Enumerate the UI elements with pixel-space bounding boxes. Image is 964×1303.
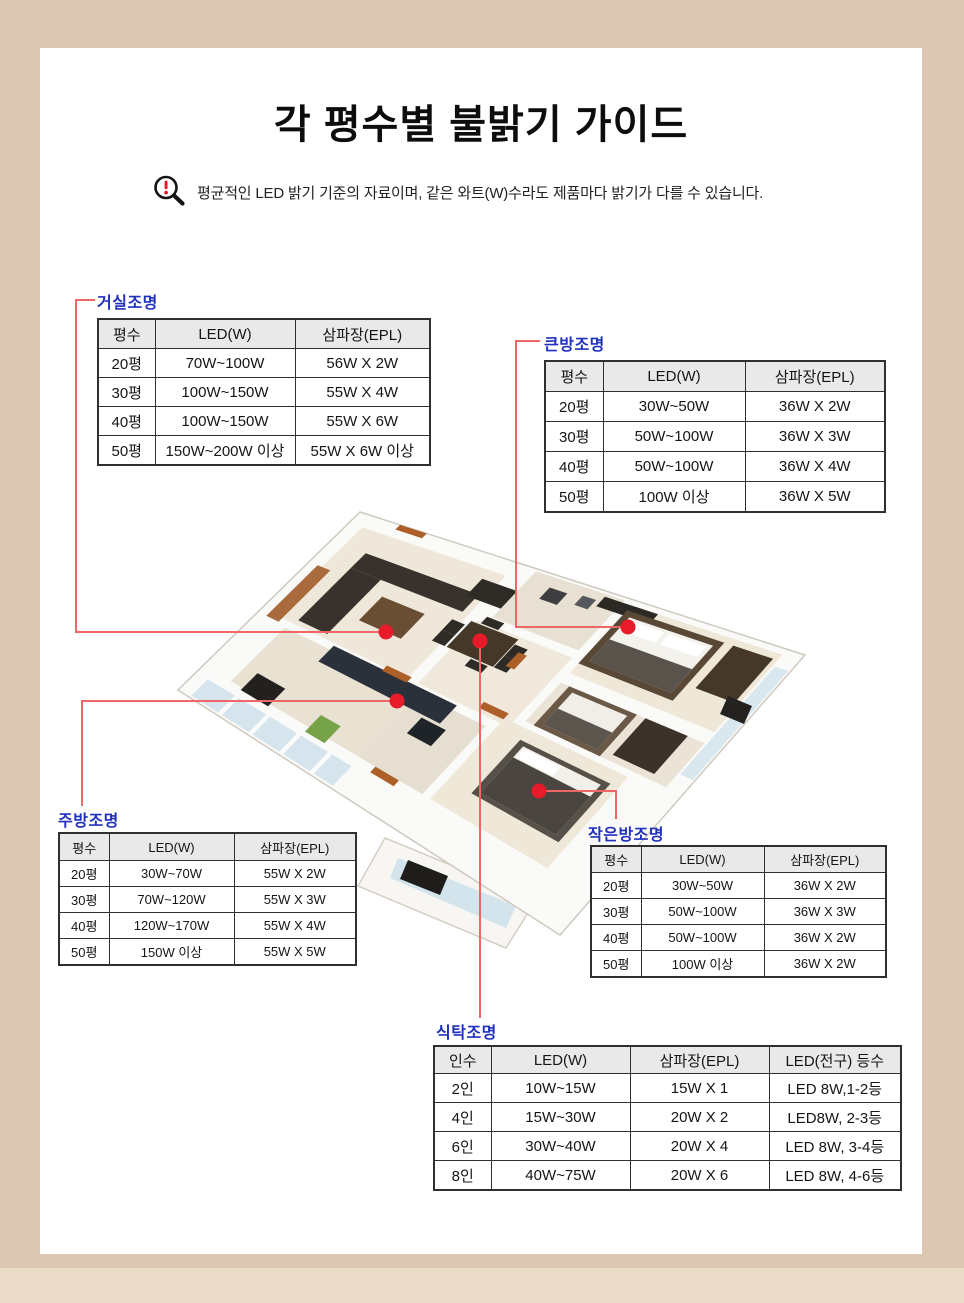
- table-cell: 36W X 2W: [764, 925, 886, 951]
- table-cell: 30평: [545, 422, 603, 452]
- table-cell: 30W~50W: [641, 873, 764, 899]
- plant: [305, 715, 341, 743]
- table-cell: 20W X 2: [630, 1103, 769, 1132]
- door-frame: [479, 702, 509, 720]
- marker-bigroom-dot: [621, 620, 636, 635]
- column-header: 삼파장(EPL): [764, 846, 886, 873]
- notice: 평균적인 LED 밝기 기준의 자료이며, 같은 와트(W)수라도 제품마다 밝…: [150, 173, 763, 211]
- section-title-smallroom: 작은방조명: [588, 821, 664, 845]
- marker-dining-dot: [473, 634, 488, 649]
- table-cell: 36W X 4W: [745, 452, 885, 482]
- chair: [494, 656, 517, 673]
- location-markers: [379, 620, 636, 799]
- table-cell: 20평: [98, 349, 155, 378]
- table-row: 50평150W~200W 이상55W X 6W 이상: [98, 436, 430, 466]
- section-title-kitchen: 주방조명: [58, 807, 119, 831]
- frame-top: [0, 0, 964, 48]
- pillow: [660, 634, 707, 657]
- bed-frame-middle: [534, 686, 637, 756]
- section-smallroom-lighting: 작은방조명 평수LED(W)삼파장(EPL)20평30W~50W36W X 2W…: [588, 821, 664, 845]
- balcony-sofa: [400, 860, 448, 895]
- column-header: 평수: [545, 361, 603, 392]
- marker-kitchen-dot: [390, 694, 405, 709]
- table-row: 40평120W~170W55W X 4W: [59, 913, 356, 939]
- column-header: 삼파장(EPL): [745, 361, 885, 392]
- table-cell: 55W X 5W: [234, 939, 356, 966]
- bath-fixture: [574, 596, 596, 610]
- table-cell: 100W~150W: [155, 378, 295, 407]
- armchair: [466, 579, 517, 609]
- table-row: 50평100W 이상36W X 2W: [591, 951, 886, 978]
- table-row: 40평50W~100W36W X 2W: [591, 925, 886, 951]
- table-cell: 50평: [545, 482, 603, 513]
- tv-unit: [596, 597, 658, 624]
- section-dining-lighting: 식탁조명 인수LED(W)삼파장(EPL)LED(전구) 등수2인10W~15W…: [436, 1019, 497, 1043]
- section-title-bigroom: 큰방조명: [544, 331, 605, 355]
- bed-frame-big: [578, 610, 724, 700]
- notice-text: 평균적인 LED 밝기 기준의 자료이며, 같은 와트(W)수라도 제품마다 밝…: [197, 182, 763, 203]
- room-corridor: [360, 694, 486, 794]
- frame-bottom: [0, 1254, 964, 1268]
- window-mullion: [218, 696, 239, 715]
- table-cell: 15W~30W: [491, 1103, 630, 1132]
- table-cell: 40W~75W: [491, 1161, 630, 1191]
- table-cell: LED8W, 2-3등: [769, 1103, 901, 1132]
- living-lighting-table: 평수LED(W)삼파장(EPL)20평70W~100W56W X 2W30평10…: [97, 318, 431, 466]
- table-cell: 50W~100W: [603, 422, 745, 452]
- table-cell: 150W 이상: [109, 939, 234, 966]
- pillow: [623, 621, 665, 642]
- table-cell: 50W~100W: [641, 925, 764, 951]
- table-row: 8인40W~75W20W X 6LED 8W, 4-6등: [434, 1161, 901, 1191]
- bed-mattress-middle: [543, 693, 627, 750]
- column-header: 평수: [59, 833, 109, 861]
- table-cell: 20W X 4: [630, 1132, 769, 1161]
- table-cell: 10W~15W: [491, 1074, 630, 1103]
- bed-mattress-small: [481, 746, 601, 835]
- bigroom-lighting-table: 평수LED(W)삼파장(EPL)20평30W~50W36W X 2W30평50W…: [544, 360, 886, 513]
- smallroom-lighting-table: 평수LED(W)삼파장(EPL)20평30W~50W36W X 2W30평50W…: [590, 845, 887, 978]
- table-cell: 50평: [59, 939, 109, 966]
- table-cell: 36W X 2W: [745, 392, 885, 422]
- table-row: 30평50W~100W36W X 3W: [545, 422, 885, 452]
- table-cell: LED 8W, 3-4등: [769, 1132, 901, 1161]
- kitchen-island: [318, 646, 457, 724]
- table-cell: 30평: [591, 899, 641, 925]
- table-cell: 4인: [434, 1103, 491, 1132]
- marker-smallroom-dot: [532, 784, 547, 799]
- table-cell: 36W X 3W: [764, 899, 886, 925]
- table-cell: 150W~200W 이상: [155, 436, 295, 466]
- column-header: LED(W): [491, 1046, 630, 1074]
- lounge-chair: [720, 696, 752, 724]
- lounge-chair: [241, 673, 286, 706]
- dining-lighting-table: 인수LED(W)삼파장(EPL)LED(전구) 등수2인10W~15W15W X…: [433, 1045, 902, 1191]
- section-title-living: 거실조명: [97, 289, 158, 313]
- table-cell: 40평: [545, 452, 603, 482]
- table-row: 6인30W~40W20W X 4LED 8W, 3-4등: [434, 1132, 901, 1161]
- section-title-dining: 식탁조명: [436, 1019, 497, 1043]
- section-living-lighting: 거실조명 평수LED(W)삼파장(EPL)20평70W~100W56W X 2W…: [97, 289, 158, 313]
- table-cell: 36W X 5W: [745, 482, 885, 513]
- balcony-bottom: [358, 838, 536, 948]
- table-row: 50평100W 이상36W X 5W: [545, 482, 885, 513]
- balcony-right-glass: [680, 667, 788, 781]
- table-cell: 30W~50W: [603, 392, 745, 422]
- column-header: LED(W): [109, 833, 234, 861]
- table-cell: 100W~150W: [155, 407, 295, 436]
- door-frame: [395, 525, 426, 538]
- section-kitchen-lighting: 주방조명 평수LED(W)삼파장(EPL)20평30W~70W55W X 2W3…: [58, 807, 119, 831]
- column-header: LED(W): [641, 846, 764, 873]
- room-kitchen: [231, 628, 461, 781]
- column-header: 삼파장(EPL): [295, 319, 430, 349]
- wardrobe: [696, 646, 774, 703]
- table-cell: 36W X 2W: [764, 951, 886, 978]
- room-dining-hall: [418, 621, 572, 728]
- table-cell: 120W~170W: [109, 913, 234, 939]
- table-cell: 55W X 4W: [234, 913, 356, 939]
- table-row: 30평70W~120W55W X 3W: [59, 887, 356, 913]
- table-cell: 70W~100W: [155, 349, 295, 378]
- chair: [465, 659, 488, 673]
- kitchen-lighting-table: 평수LED(W)삼파장(EPL)20평30W~70W55W X 2W30평70W…: [58, 832, 357, 966]
- table-cell: 40평: [591, 925, 641, 951]
- table-cell: 20W X 6: [630, 1161, 769, 1191]
- table-cell: 100W 이상: [641, 951, 764, 978]
- table-row: 30평100W~150W55W X 4W: [98, 378, 430, 407]
- balcony-bottom-glass: [390, 858, 516, 928]
- table-cell: 55W X 4W: [295, 378, 430, 407]
- chair: [442, 619, 465, 635]
- window-mullion: [279, 733, 301, 754]
- table-cell: 55W X 3W: [234, 887, 356, 913]
- table-row: 50평150W 이상55W X 5W: [59, 939, 356, 966]
- door-frame: [370, 767, 399, 787]
- table-cell: 50평: [98, 436, 155, 466]
- table-row: 40평100W~150W55W X 6W: [98, 407, 430, 436]
- table-cell: 100W 이상: [603, 482, 745, 513]
- table-cell: 36W X 2W: [764, 873, 886, 899]
- door-frame: [506, 652, 527, 669]
- table-cell: 15W X 1: [630, 1074, 769, 1103]
- table-cell: 50평: [591, 951, 641, 978]
- table-row: 20평30W~50W36W X 2W: [591, 873, 886, 899]
- coffee-table: [359, 597, 425, 639]
- bed-mattress-big: [589, 617, 713, 693]
- column-header: LED(W): [603, 361, 745, 392]
- table-cell: LED 8W,1-2등: [769, 1074, 901, 1103]
- window-mullion: [249, 715, 270, 735]
- chair: [481, 617, 504, 630]
- column-header: LED(W): [155, 319, 295, 349]
- column-header: 평수: [98, 319, 155, 349]
- table-cell: 20평: [591, 873, 641, 899]
- bed-blanket-middle: [543, 709, 612, 750]
- table-cell: 30W~70W: [109, 861, 234, 887]
- section-bigroom-lighting: 큰방조명 평수LED(W)삼파장(EPL)20평30W~50W36W X 2W3…: [544, 331, 605, 355]
- bath-fixture: [539, 588, 567, 605]
- infographic-page: 각 평수별 불밝기 가이드 평균적인 LED 밝기 기준의 자료이며, 같은 와…: [0, 0, 964, 1303]
- balcony-left-glass: [191, 679, 351, 786]
- table-cell: 50W~100W: [641, 899, 764, 925]
- table-cell: 30W~40W: [491, 1132, 630, 1161]
- table-row: 2인10W~15W15W X 1LED 8W,1-2등: [434, 1074, 901, 1103]
- table-cell: 55W X 6W 이상: [295, 436, 430, 466]
- room-living: [274, 527, 506, 678]
- table-row: 20평30W~70W55W X 2W: [59, 861, 356, 887]
- connector-smallroom: [539, 791, 616, 819]
- room-bigroom: [570, 606, 783, 733]
- table-cell: 6인: [434, 1132, 491, 1161]
- table-cell: 40평: [98, 407, 155, 436]
- table-cell: 55W X 6W: [295, 407, 430, 436]
- table-cell: 30평: [59, 887, 109, 913]
- table-cell: 30평: [98, 378, 155, 407]
- kitchen-appliance: [407, 718, 446, 747]
- frame-bottom-strip: [0, 1268, 964, 1303]
- column-header: 삼파장(EPL): [234, 833, 356, 861]
- bed-blanket-big: [589, 639, 692, 693]
- connector-kitchen: [82, 701, 397, 806]
- table-cell: 20평: [545, 392, 603, 422]
- room-middleroom: [525, 683, 704, 788]
- window-frame: [266, 565, 330, 621]
- table-cell: 2인: [434, 1074, 491, 1103]
- column-header: 인수: [434, 1046, 491, 1074]
- door-frame: [382, 666, 412, 683]
- table-cell: 56W X 2W: [295, 349, 430, 378]
- page-title: 각 평수별 불밝기 가이드: [40, 92, 922, 150]
- frame-left: [0, 48, 40, 1254]
- table-cell: 50W~100W: [603, 452, 745, 482]
- sofa: [298, 568, 381, 634]
- table-cell: 36W X 3W: [745, 422, 885, 452]
- bed-blanket-small: [481, 757, 591, 835]
- table-cell: 8인: [434, 1161, 491, 1191]
- column-header: LED(전구) 등수: [769, 1046, 901, 1074]
- table-cell: 40평: [59, 913, 109, 939]
- table-cell: LED 8W, 4-6등: [769, 1161, 901, 1191]
- chair: [432, 630, 455, 646]
- table-row: 30평50W~100W36W X 3W: [591, 899, 886, 925]
- table-cell: 20평: [59, 861, 109, 887]
- table-row: 20평70W~100W56W X 2W: [98, 349, 430, 378]
- table-cell: 55W X 2W: [234, 861, 356, 887]
- chair: [504, 645, 527, 662]
- frame-right: [922, 48, 964, 1254]
- table-row: 4인15W~30W20W X 2LED8W, 2-3등: [434, 1103, 901, 1132]
- column-header: 삼파장(EPL): [630, 1046, 769, 1074]
- sofa: [351, 553, 479, 612]
- magnifier-alert-icon: [150, 173, 188, 211]
- table-row: 40평50W~100W36W X 4W: [545, 452, 885, 482]
- window-mullion: [310, 752, 332, 774]
- pillow: [516, 749, 561, 776]
- wardrobe: [613, 718, 688, 774]
- table-row: 20평30W~50W36W X 2W: [545, 392, 885, 422]
- dining-table: [447, 621, 519, 667]
- room-entry: [492, 571, 624, 650]
- marker-living-dot: [379, 625, 394, 640]
- column-header: 평수: [591, 846, 641, 873]
- table-cell: 70W~120W: [109, 887, 234, 913]
